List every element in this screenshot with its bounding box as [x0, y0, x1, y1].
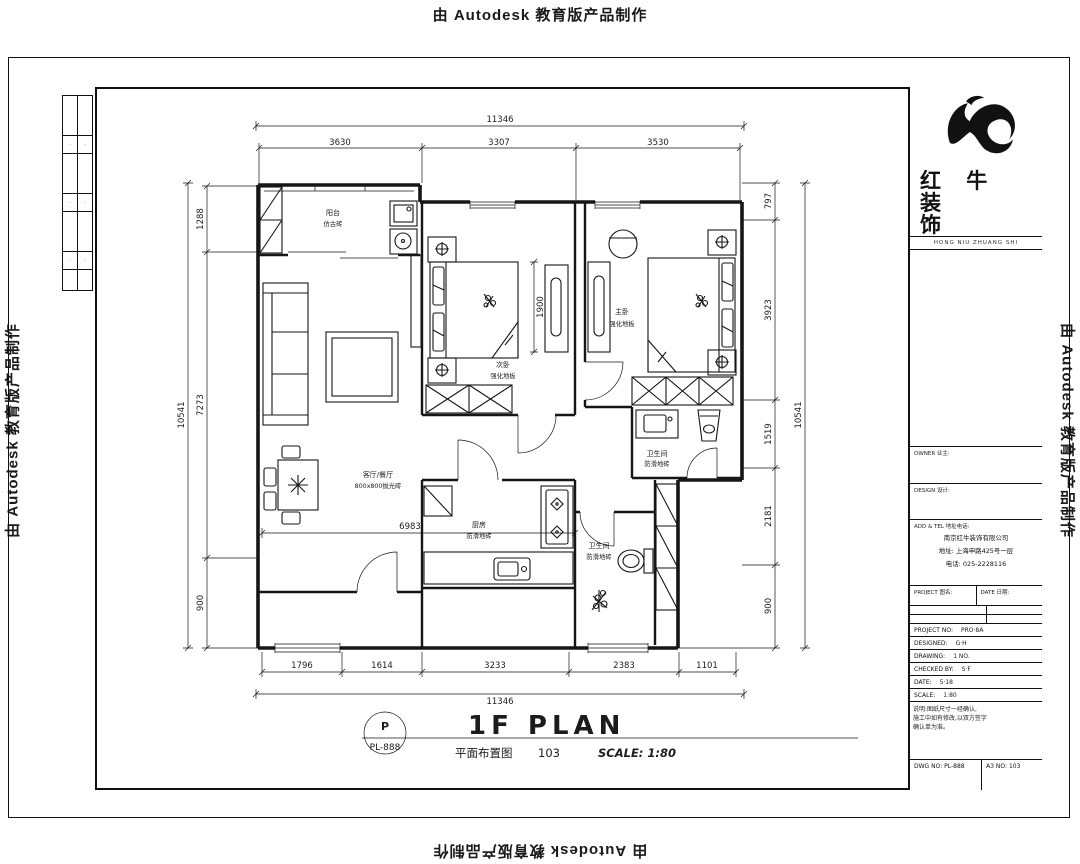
bedroom1-nightstand-top: [428, 237, 456, 262]
balcony-cabinet: [260, 187, 282, 253]
company-info-cell: ADD & TEL 地址电话: 南京红牛装饰有限公司 地址: 上海申路425号一…: [910, 520, 1042, 586]
drawing-title: P PL-888 1F PLAN 平面布置图 103 SCALE: 1:80: [362, 711, 858, 760]
svg-text:3923: 3923: [764, 299, 774, 321]
tv-cabinet: [411, 255, 421, 347]
svg-text:防滑地砖: 防滑地砖: [466, 531, 492, 540]
svg-text:800x800抛光砖: 800x800抛光砖: [355, 481, 402, 490]
svg-text:仿古砖: 仿古砖: [324, 219, 344, 228]
svg-text:1101: 1101: [696, 661, 718, 671]
interior-walls: [258, 202, 742, 648]
design-cell: DESIGN 设计:: [910, 484, 1042, 520]
svg-text:1614: 1614: [371, 661, 393, 671]
room-label-bath2: 卫生间: [589, 541, 610, 550]
company-name: 南京红牛装饰有限公司: [915, 533, 1036, 542]
dim-kitchen-6983: 6983: [399, 522, 421, 532]
bedroom2-desk: [588, 262, 610, 352]
plan-sheet-no: 103: [538, 746, 560, 760]
project-date-row: PROJECT 图名: DATE 日期:: [910, 586, 1042, 606]
company-address: 地址: 上海申路425号一层: [915, 546, 1036, 555]
revision-strip: ·· ·· ··: [62, 95, 93, 291]
tall-cabinet: [656, 484, 678, 610]
room-label-bath1: 卫生间: [647, 449, 668, 458]
kitchen-sink: [494, 558, 530, 580]
svg-text:3233: 3233: [484, 661, 506, 671]
balcony-sink: [390, 201, 417, 226]
svg-text:3630: 3630: [329, 138, 351, 148]
dim-left-overall: 10541: [177, 401, 187, 428]
room-label-balcony: 阳台: [326, 208, 340, 217]
watermark-bottom: 由 Autodesk 教育版产品制作: [0, 841, 1080, 862]
field-designed: DESIGNED:G·H: [910, 637, 1042, 650]
dim-right-overall: 10541: [794, 401, 804, 428]
dim-top-overall: 11346: [486, 115, 513, 125]
title-block: 红 牛 装 饰 HONG NIU ZHUANG SHI OWNER 业主: DE…: [908, 87, 1042, 790]
dim-left: [183, 180, 258, 651]
field-drawing: DRAWING:1 NO.: [910, 650, 1042, 663]
title-bubble-top: P: [381, 720, 389, 733]
svg-text:7273: 7273: [196, 394, 206, 416]
plan-title: 1F PLAN: [468, 711, 625, 741]
revision-row: ··: [63, 136, 92, 154]
field-date: DATE:5·18: [910, 676, 1042, 689]
bedroom1-wardrobe: [426, 385, 512, 413]
bath1-vanity: [636, 410, 678, 438]
bedroom1-bed: [430, 262, 518, 358]
company-phone: 电话: 025-2228116: [915, 559, 1036, 568]
bedroom2-chair: [609, 230, 637, 258]
svg-text:强化地板: 强化地板: [490, 371, 516, 380]
room-label-kitchen: 厨房: [472, 520, 486, 529]
cad-floorplan-screenshot: { "watermark": {"text": "由 Autodesk 教育版产…: [0, 0, 1080, 864]
sheet-no: A3 NO: 103: [982, 760, 1042, 790]
svg-text:强化地板: 强化地板: [609, 319, 635, 328]
dim-interior: [259, 259, 578, 538]
svg-text:2181: 2181: [764, 505, 774, 527]
bedroom2-nightstand-top: [708, 230, 736, 255]
plan-subtitle: 平面布置图: [455, 746, 513, 760]
plan-scale: SCALE: 1:80: [598, 746, 676, 760]
dim-bed1-1900: 1900: [536, 296, 546, 318]
room-label-living: 客厅/餐厅: [363, 470, 393, 479]
dining-set: [264, 446, 318, 524]
field-checked-by: CHECKED BY:S·F: [910, 663, 1042, 676]
svg-text:3530: 3530: [647, 138, 669, 148]
owner-cell: OWNER 业主:: [910, 447, 1042, 484]
bath2-basin: [618, 549, 653, 573]
svg-text:797: 797: [764, 193, 774, 209]
svg-text:防滑地砖: 防滑地砖: [644, 459, 670, 468]
room-label-bedroom1: 次卧: [496, 360, 510, 369]
brand-text: 红 牛 装 饰: [920, 170, 1032, 236]
bath2-plant: [592, 590, 607, 612]
svg-text:2383: 2383: [613, 661, 635, 671]
bedroom1-desk: [545, 265, 568, 352]
exterior-walls: [258, 185, 742, 648]
notes-cell: 说明:图纸尺寸一经确认, 施工中如有修改,以双方签字 确认单为准。: [910, 702, 1042, 760]
coffee-table: [326, 332, 398, 402]
dwg-no-row: DWG NO: PL-888 A3 NO: 103: [910, 760, 1042, 790]
field-scale: SCALE:1:80: [910, 689, 1042, 702]
svg-text:1288: 1288: [196, 208, 206, 230]
revision-row: [63, 212, 92, 252]
sofa: [263, 283, 308, 425]
svg-text:1796: 1796: [291, 661, 313, 671]
svg-text:900: 900: [764, 598, 774, 614]
bull-logo-icon: [910, 87, 1042, 170]
bedroom2-wardrobe: [632, 377, 733, 405]
bath1-toilet: [698, 410, 720, 441]
room-label-bedroom2: 主卧: [615, 307, 629, 316]
revision-row: ··: [63, 252, 92, 270]
bedroom2-nightstand-bottom: [708, 350, 736, 375]
brand-subtext: HONG NIU ZHUANG SHI: [910, 237, 1042, 250]
dim-bottom: [253, 652, 747, 699]
dim-bottom-overall: 11346: [486, 697, 513, 707]
revision-row: ··: [63, 194, 92, 212]
svg-text:1519: 1519: [764, 423, 774, 445]
revision-row: [63, 270, 92, 290]
dwg-no: DWG NO: PL-888: [910, 760, 982, 790]
washing-machine: [390, 229, 417, 254]
svg-text:防滑地砖: 防滑地砖: [586, 552, 612, 561]
dim-top: [253, 121, 747, 200]
title-bubble-code: PL-888: [370, 743, 401, 753]
bedroom2-bed: [648, 258, 735, 372]
project-name-cell: [910, 250, 1042, 447]
revision-row: [63, 96, 92, 136]
field-project-no: PROJECT NO:PRO·8A: [910, 624, 1042, 637]
company-logo: 红 牛 装 饰: [910, 87, 1042, 237]
revision-row: [63, 154, 92, 194]
bedroom1-nightstand-bottom: [428, 358, 456, 383]
svg-text:900: 900: [196, 595, 206, 611]
svg-text:3307: 3307: [488, 138, 510, 148]
dim-right: [678, 180, 810, 651]
floor-plan-drawing: 阳台 仿古砖 客厅/餐厅 800x800抛光砖 次卧 强化地板 主卧 强化地板 …: [95, 87, 908, 790]
kitchen-stove: [546, 490, 568, 544]
watermark-top: 由 Autodesk 教育版产品制作: [0, 4, 1080, 25]
